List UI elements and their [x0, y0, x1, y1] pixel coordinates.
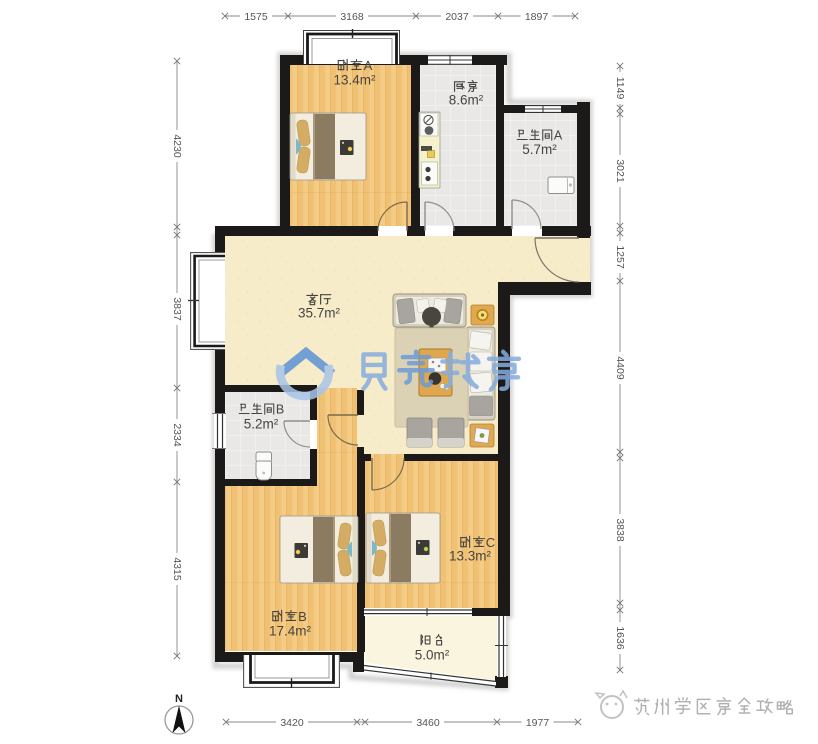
svg-text:4230: 4230 — [171, 134, 183, 158]
svg-text:4315: 4315 — [171, 557, 183, 581]
svg-text:1636: 1636 — [614, 626, 626, 650]
svg-text:4409: 4409 — [614, 356, 626, 380]
svg-text:3837: 3837 — [171, 297, 183, 321]
svg-text:1977: 1977 — [526, 717, 550, 729]
svg-text:1149: 1149 — [614, 77, 626, 100]
svg-text:1897: 1897 — [525, 11, 549, 23]
svg-text:A: A — [364, 58, 373, 73]
svg-text:3460: 3460 — [416, 717, 440, 729]
svg-text:B: B — [298, 609, 307, 624]
svg-text:17.4m²: 17.4m² — [269, 624, 312, 639]
svg-text:B: B — [276, 403, 284, 417]
svg-text:8.6m²: 8.6m² — [449, 93, 484, 108]
svg-text:N: N — [175, 693, 183, 705]
svg-text:13.3m²: 13.3m² — [449, 549, 492, 564]
svg-text:3168: 3168 — [340, 11, 364, 23]
svg-text:1257: 1257 — [614, 245, 626, 269]
svg-text:3420: 3420 — [280, 717, 304, 729]
svg-text:2037: 2037 — [445, 11, 469, 23]
svg-text:3021: 3021 — [614, 159, 626, 183]
svg-text:A: A — [554, 129, 563, 143]
svg-text:3838: 3838 — [614, 518, 626, 542]
svg-text:5.2m²: 5.2m² — [244, 417, 279, 432]
svg-text:13.4m²: 13.4m² — [333, 73, 376, 88]
svg-text:5.0m²: 5.0m² — [415, 648, 450, 663]
svg-text:1575: 1575 — [244, 11, 268, 23]
svg-text:35.7m²: 35.7m² — [298, 306, 341, 321]
svg-text:2334: 2334 — [171, 423, 183, 447]
svg-text:5.7m²: 5.7m² — [522, 142, 557, 157]
